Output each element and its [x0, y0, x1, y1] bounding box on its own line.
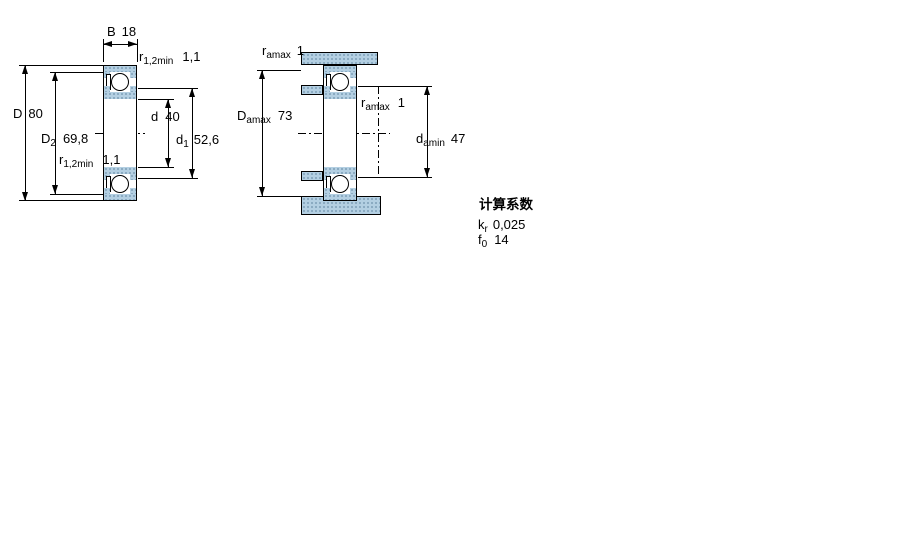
r-sub: amax — [266, 50, 290, 61]
inner-ring-shoulder — [130, 174, 136, 180]
dim-Da-sub: amax — [246, 115, 270, 126]
ball-bottom — [111, 175, 129, 193]
dim-D2-label: D269,8 — [41, 132, 88, 148]
arrow-d-top — [165, 99, 171, 108]
dim-Da-value: 73 — [278, 108, 292, 123]
r-value: 1,1 — [102, 152, 120, 167]
ext-line-B-right — [137, 39, 138, 62]
shaft-shoulder-top — [301, 85, 323, 95]
factor-kr-value: 0,025 — [493, 217, 526, 232]
arrow-B-right — [128, 41, 137, 47]
dim-D-base: D — [13, 106, 22, 121]
bearing-drawing-page: B18 r1,2min1,1 D80 D269,8 r1,2min1,1 — [0, 0, 900, 560]
ext-line-d1-bottom — [138, 178, 198, 179]
ext-line-D-top — [19, 65, 103, 66]
dim-r12min-bottom-label: r1,2min1,1 — [59, 153, 120, 169]
shaft-shoulder-bottom — [301, 171, 323, 181]
inner-ring-band-top — [324, 92, 356, 99]
r-value: 1,1 — [182, 49, 200, 64]
arrow-da-top — [424, 86, 430, 95]
dim-D2-base: D — [41, 131, 50, 146]
ext-line-Da-bottom — [257, 196, 301, 197]
calculation-factors-title: 计算系数 — [479, 198, 533, 212]
dim-d-value: 40 — [165, 109, 179, 124]
dim-d1-label: d152,6 — [176, 133, 219, 149]
inner-ring-band-bottom — [324, 167, 356, 174]
arrow-Da-top — [259, 70, 265, 79]
r-sub: amax — [365, 102, 389, 113]
ext-line-D2-bottom — [50, 194, 103, 195]
dim-B-label: B18 — [107, 25, 136, 39]
ext-line-da-bottom — [358, 177, 432, 178]
dim-da-sub: amin — [423, 138, 445, 149]
r-sub: 1,2min — [63, 159, 93, 170]
arrow-Da-bottom — [259, 187, 265, 196]
r-sub: 1,2min — [143, 56, 173, 67]
dim-damin-label: damin47 — [416, 132, 465, 148]
outer-ring-band-bottom — [324, 194, 356, 200]
arrow-d1-bottom — [189, 169, 195, 178]
dim-ramax-shaft-label: ramax1 — [361, 96, 405, 112]
dim-line-D — [25, 65, 26, 201]
arrow-d1-top — [189, 88, 195, 97]
dim-D-label: D80 — [13, 107, 43, 121]
housing-block-top — [301, 52, 378, 65]
arrow-D-top — [22, 65, 28, 74]
outer-ring-band-bottom — [104, 194, 136, 200]
dim-ramax-top-label: ramax1 — [262, 44, 304, 60]
r-value: 1 — [297, 43, 304, 58]
dim-r12min-top-label: r1,2min1,1 — [139, 50, 200, 66]
factor-f0-value: 14 — [494, 232, 508, 247]
ball-top — [331, 73, 349, 91]
ball-bottom — [331, 175, 349, 193]
arrow-D-bottom — [22, 192, 28, 201]
dim-B-value: 18 — [122, 24, 136, 39]
outer-ring-shoulder — [350, 72, 356, 78]
factor-f0-sub: 0 — [482, 239, 488, 250]
factor-f0: f014 — [478, 233, 509, 249]
arrow-B-left — [103, 41, 112, 47]
ext-line-D-bottom — [19, 200, 103, 201]
dim-B-base: B — [107, 24, 116, 39]
factor-kr-base: k — [478, 217, 485, 232]
arrow-d-bottom — [165, 158, 171, 167]
dim-Damax-label: Damax73 — [237, 109, 292, 125]
dim-D2-value: 69,8 — [63, 131, 88, 146]
outer-ring-shoulder — [130, 72, 136, 78]
arrow-D2-top — [52, 72, 58, 81]
dim-D-value: 80 — [28, 106, 42, 121]
arrow-da-bottom — [424, 168, 430, 177]
r-value: 1 — [398, 95, 405, 110]
dim-da-value: 47 — [451, 131, 465, 146]
inner-ring-shoulder — [350, 174, 356, 180]
arrow-D2-bottom — [52, 185, 58, 194]
dim-line-Da — [262, 70, 263, 196]
ext-line-d-bottom — [138, 167, 174, 168]
dim-d-base: d — [151, 109, 158, 124]
bearing-cross-section-right — [323, 65, 357, 201]
dim-d-label: d40 — [151, 110, 180, 124]
dim-d1-sub: 1 — [183, 139, 189, 150]
dim-Da-base: D — [237, 108, 246, 123]
bearing-cross-section-left — [103, 65, 137, 201]
dim-d1-value: 52,6 — [194, 132, 219, 147]
dim-D2-sub: 2 — [50, 138, 56, 149]
ext-line-da-top — [358, 86, 432, 87]
ball-top — [111, 73, 129, 91]
inner-ring-band-top — [104, 92, 136, 99]
